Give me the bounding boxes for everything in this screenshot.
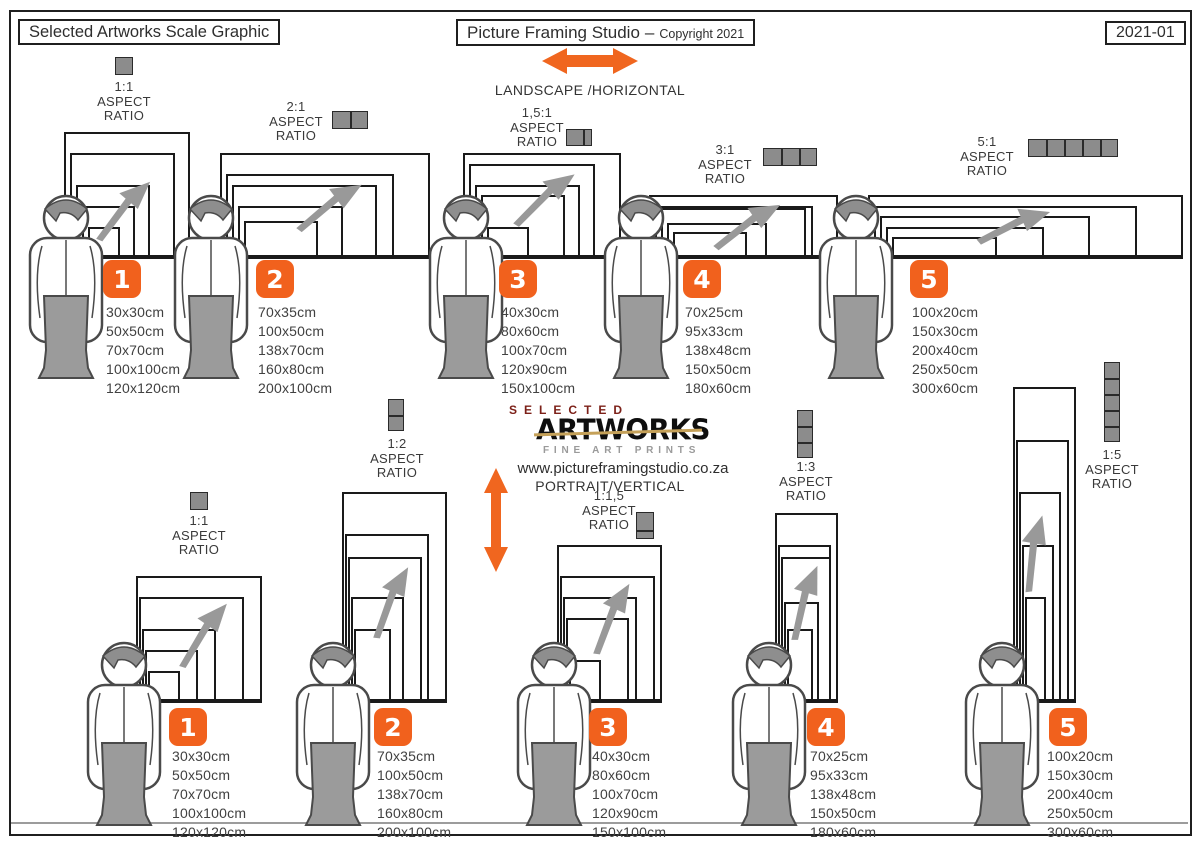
group-number-badge: 3 bbox=[589, 708, 627, 746]
title-dash: – bbox=[645, 23, 654, 43]
person-figure bbox=[427, 192, 505, 382]
person-figure bbox=[27, 192, 105, 382]
size-item: 70x70cm bbox=[172, 785, 246, 804]
ratio-icon bbox=[763, 148, 817, 166]
group-number-badge: 1 bbox=[169, 708, 207, 746]
ratio-icon-divider bbox=[781, 149, 783, 165]
size-list: 30x30cm50x50cm70x70cm100x100cm120x120cm bbox=[172, 747, 246, 842]
ratio-value: 5:1 bbox=[960, 135, 1014, 150]
size-list: 40x30cm80x60cm100x70cm120x90cm150x100cm bbox=[592, 747, 666, 842]
aspect-ratio-label: 1:1ASPECTRATIO bbox=[97, 80, 151, 124]
size-item: 138x70cm bbox=[377, 785, 451, 804]
ratio-value: 1:1,5 bbox=[582, 489, 636, 504]
size-item: 138x48cm bbox=[810, 785, 876, 804]
ratio-icon bbox=[636, 512, 654, 539]
size-item: 80x60cm bbox=[592, 766, 666, 785]
edition-number: 2021-01 bbox=[1105, 21, 1186, 45]
size-item: 300x60cm bbox=[912, 379, 978, 398]
size-item: 160x80cm bbox=[258, 360, 332, 379]
size-item: 100x20cm bbox=[1047, 747, 1113, 766]
ratio-icon-divider bbox=[637, 530, 653, 532]
ratio-word: RATIO bbox=[172, 543, 226, 558]
aspect-word: ASPECT bbox=[960, 150, 1014, 165]
aspect-word: ASPECT bbox=[172, 529, 226, 544]
size-item: 100x100cm bbox=[172, 804, 246, 823]
group-number-badge: 1 bbox=[103, 260, 141, 298]
ratio-icon bbox=[1104, 362, 1120, 442]
ratio-word: RATIO bbox=[582, 518, 636, 533]
ratio-icon-divider bbox=[799, 149, 801, 165]
size-list: 40x30cm80x60cm100x70cm120x90cm150x100cm bbox=[501, 303, 575, 398]
group-number-badge: 4 bbox=[807, 708, 845, 746]
size-item: 100x50cm bbox=[377, 766, 451, 785]
aspect-ratio-label: 3:1ASPECTRATIO bbox=[698, 143, 752, 187]
aspect-word: ASPECT bbox=[97, 95, 151, 110]
ratio-word: RATIO bbox=[779, 489, 833, 504]
size-item: 100x20cm bbox=[912, 303, 978, 322]
aspect-word: ASPECT bbox=[269, 115, 323, 130]
ratio-word: RATIO bbox=[97, 109, 151, 124]
size-item: 80x60cm bbox=[501, 322, 575, 341]
size-item: 40x30cm bbox=[501, 303, 575, 322]
aspect-ratio-label: 1:2ASPECTRATIO bbox=[370, 437, 424, 481]
size-item: 95x33cm bbox=[810, 766, 876, 785]
size-item: 70x35cm bbox=[258, 303, 332, 322]
size-item: 200x40cm bbox=[912, 341, 978, 360]
size-list: 100x20cm150x30cm200x40cm250x50cm300x60cm bbox=[912, 303, 978, 398]
ratio-value: 2:1 bbox=[269, 100, 323, 115]
ratio-word: RATIO bbox=[370, 466, 424, 481]
copyright-text: Copyright 2021 bbox=[659, 24, 744, 41]
frame-baseline bbox=[868, 255, 1183, 259]
studio-name: Picture Framing Studio bbox=[467, 23, 640, 43]
size-list: 70x35cm100x50cm138x70cm160x80cm200x100cm bbox=[377, 747, 451, 842]
size-item: 250x50cm bbox=[1047, 804, 1113, 823]
ratio-icon-divider bbox=[1100, 140, 1102, 156]
ratio-value: 1,5:1 bbox=[510, 106, 564, 121]
ratio-icon-divider bbox=[1105, 394, 1119, 396]
size-item: 200x100cm bbox=[377, 823, 451, 842]
person-figure bbox=[963, 639, 1041, 829]
aspect-ratio-label: 5:1ASPECTRATIO bbox=[960, 135, 1014, 179]
size-list: 70x25cm95x33cm138x48cm150x50cm180x60cm bbox=[685, 303, 751, 398]
aspect-ratio-label: 2:1ASPECTRATIO bbox=[269, 100, 323, 144]
person-figure bbox=[515, 639, 593, 829]
aspect-ratio-label: 1:3ASPECTRATIO bbox=[779, 460, 833, 504]
ratio-icon-divider bbox=[350, 112, 352, 128]
group-number-badge: 3 bbox=[499, 260, 537, 298]
ratio-value: 3:1 bbox=[698, 143, 752, 158]
size-item: 100x70cm bbox=[592, 785, 666, 804]
landscape-heading: LANDSCAPE /HORIZONTAL bbox=[455, 82, 725, 98]
person-figure bbox=[730, 639, 808, 829]
ratio-icon-divider bbox=[798, 442, 812, 444]
ratio-value: 1:2 bbox=[370, 437, 424, 452]
size-item: 50x50cm bbox=[172, 766, 246, 785]
size-item: 95x33cm bbox=[685, 322, 751, 341]
size-item: 50x50cm bbox=[106, 322, 180, 341]
ratio-icon bbox=[388, 399, 404, 431]
aspect-word: ASPECT bbox=[698, 158, 752, 173]
group-number-badge: 5 bbox=[910, 260, 948, 298]
ratio-icon bbox=[566, 129, 592, 146]
size-item: 120x90cm bbox=[501, 360, 575, 379]
aspect-word: ASPECT bbox=[1085, 463, 1139, 478]
group-number-badge: 4 bbox=[683, 260, 721, 298]
person-figure bbox=[817, 192, 895, 382]
size-item: 138x48cm bbox=[685, 341, 751, 360]
size-list: 100x20cm150x30cm200x40cm250x50cm300x60cm bbox=[1047, 747, 1113, 842]
ratio-icon-divider bbox=[1105, 410, 1119, 412]
aspect-ratio-label: 1:1,5ASPECTRATIO bbox=[582, 489, 636, 533]
size-item: 150x50cm bbox=[685, 360, 751, 379]
ratio-icon-divider bbox=[1082, 140, 1084, 156]
ratio-icon bbox=[190, 492, 208, 510]
size-item: 70x35cm bbox=[377, 747, 451, 766]
size-item: 120x90cm bbox=[592, 804, 666, 823]
ratio-icon-divider bbox=[1105, 378, 1119, 380]
ratio-icon bbox=[1028, 139, 1118, 157]
ratio-value: 1:1 bbox=[97, 80, 151, 95]
size-item: 180x60cm bbox=[685, 379, 751, 398]
size-item: 250x50cm bbox=[912, 360, 978, 379]
ratio-icon-divider bbox=[1064, 140, 1066, 156]
ratio-icon-divider bbox=[1046, 140, 1048, 156]
size-item: 100x70cm bbox=[501, 341, 575, 360]
website-url: www.pictureframingstudio.co.za bbox=[490, 460, 756, 477]
group-number-badge: 2 bbox=[256, 260, 294, 298]
ratio-word: RATIO bbox=[698, 172, 752, 187]
ratio-word: RATIO bbox=[510, 135, 564, 150]
size-item: 120x120cm bbox=[106, 379, 180, 398]
size-item: 160x80cm bbox=[377, 804, 451, 823]
ratio-icon bbox=[797, 410, 813, 458]
ratio-value: 1:3 bbox=[779, 460, 833, 475]
page-title: Selected Artworks Scale Graphic bbox=[18, 19, 280, 45]
studio-title-box: Picture Framing Studio – Copyright 2021 bbox=[456, 19, 755, 46]
size-list: 70x25cm95x33cm138x48cm150x50cm180x60cm bbox=[810, 747, 876, 842]
size-item: 150x30cm bbox=[1047, 766, 1113, 785]
person-figure bbox=[85, 639, 163, 829]
aspect-ratio-label: 1:1ASPECTRATIO bbox=[172, 514, 226, 558]
ratio-value: 1:5 bbox=[1085, 448, 1139, 463]
size-item: 150x30cm bbox=[912, 322, 978, 341]
size-item: 300x60cm bbox=[1047, 823, 1113, 842]
person-figure bbox=[602, 192, 680, 382]
size-list: 30x30cm50x50cm70x70cm100x100cm120x120cm bbox=[106, 303, 180, 398]
size-item: 70x25cm bbox=[685, 303, 751, 322]
person-figure bbox=[294, 639, 372, 829]
aspect-word: ASPECT bbox=[370, 452, 424, 467]
size-list: 70x35cm100x50cm138x70cm160x80cm200x100cm bbox=[258, 303, 332, 398]
size-item: 100x100cm bbox=[106, 360, 180, 379]
ratio-icon-divider bbox=[389, 415, 403, 417]
aspect-ratio-label: 1:5ASPECTRATIO bbox=[1085, 448, 1139, 492]
frame-baseline bbox=[220, 255, 430, 259]
aspect-ratio-label: 1,5:1ASPECTRATIO bbox=[510, 106, 564, 150]
size-item: 150x100cm bbox=[501, 379, 575, 398]
group-number-badge: 5 bbox=[1049, 708, 1087, 746]
poster-canvas: Selected Artworks Scale Graphic Picture … bbox=[0, 0, 1200, 842]
size-item: 120x120cm bbox=[172, 823, 246, 842]
size-item: 70x70cm bbox=[106, 341, 180, 360]
ratio-icon-divider bbox=[583, 130, 585, 145]
size-item: 70x25cm bbox=[810, 747, 876, 766]
logo-subtitle-text: FINE ART PRINTS bbox=[543, 445, 700, 456]
size-item: 40x30cm bbox=[592, 747, 666, 766]
landscape-double-arrow-icon bbox=[542, 47, 638, 75]
aspect-word: ASPECT bbox=[779, 475, 833, 490]
size-item: 100x50cm bbox=[258, 322, 332, 341]
ratio-word: RATIO bbox=[1085, 477, 1139, 492]
ratio-icon bbox=[115, 57, 133, 75]
size-item: 30x30cm bbox=[172, 747, 246, 766]
ratio-word: RATIO bbox=[960, 164, 1014, 179]
ratio-icon-divider bbox=[798, 426, 812, 428]
ratio-word: RATIO bbox=[269, 129, 323, 144]
aspect-word: ASPECT bbox=[510, 121, 564, 136]
size-item: 30x30cm bbox=[106, 303, 180, 322]
group-number-badge: 2 bbox=[374, 708, 412, 746]
ratio-icon bbox=[332, 111, 368, 129]
aspect-word: ASPECT bbox=[582, 504, 636, 519]
person-figure bbox=[172, 192, 250, 382]
size-item: 150x50cm bbox=[810, 804, 876, 823]
ratio-value: 1:1 bbox=[172, 514, 226, 529]
size-item: 138x70cm bbox=[258, 341, 332, 360]
size-item: 200x100cm bbox=[258, 379, 332, 398]
size-item: 200x40cm bbox=[1047, 785, 1113, 804]
size-item: 150x100cm bbox=[592, 823, 666, 842]
ratio-icon-divider bbox=[1105, 426, 1119, 428]
size-item: 180x60cm bbox=[810, 823, 876, 842]
